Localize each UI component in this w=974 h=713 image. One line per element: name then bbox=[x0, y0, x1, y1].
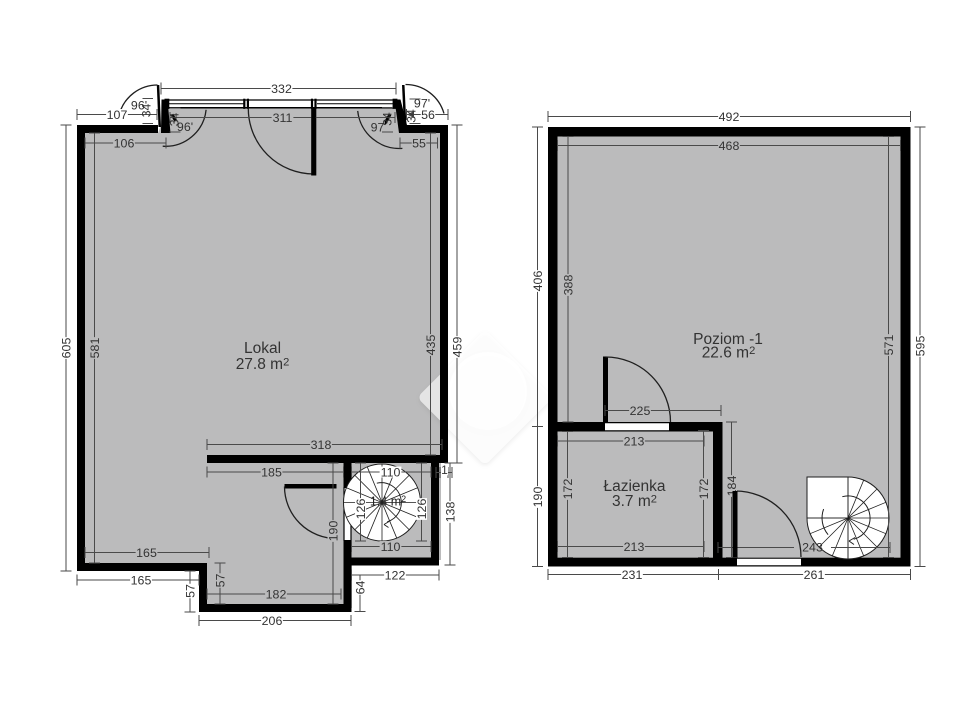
svg-text:243: 243 bbox=[802, 540, 823, 554]
svg-text:110: 110 bbox=[381, 540, 401, 554]
svg-text:126: 126 bbox=[415, 499, 429, 520]
svg-text:581: 581 bbox=[88, 338, 102, 359]
svg-text:Lokal: Lokal bbox=[244, 340, 281, 357]
svg-text:182: 182 bbox=[266, 587, 287, 601]
svg-text:1.4 m2: 1.4 m2 bbox=[370, 494, 406, 509]
svg-text:3.7 m2: 3.7 m2 bbox=[612, 493, 657, 510]
svg-text:172: 172 bbox=[561, 479, 575, 500]
svg-text:190: 190 bbox=[326, 521, 340, 542]
svg-text:110: 110 bbox=[381, 465, 401, 479]
svg-text:106: 106 bbox=[114, 136, 135, 150]
svg-text:122: 122 bbox=[385, 568, 406, 582]
svg-text:165: 165 bbox=[131, 573, 152, 587]
svg-text:34: 34 bbox=[405, 109, 419, 123]
svg-text:57: 57 bbox=[183, 584, 197, 598]
svg-text:318: 318 bbox=[311, 438, 332, 452]
svg-text:225: 225 bbox=[630, 404, 651, 418]
svg-text:468: 468 bbox=[719, 139, 740, 153]
svg-text:27.8 m2: 27.8 m2 bbox=[236, 356, 290, 373]
svg-text:22.6 m2: 22.6 m2 bbox=[702, 344, 756, 361]
svg-text:492: 492 bbox=[719, 110, 740, 124]
svg-text:185: 185 bbox=[261, 465, 282, 479]
svg-text:605: 605 bbox=[59, 338, 73, 359]
svg-text:107: 107 bbox=[107, 108, 128, 122]
svg-text:213: 213 bbox=[624, 434, 645, 448]
svg-text:332: 332 bbox=[271, 82, 292, 96]
svg-text:571: 571 bbox=[882, 335, 896, 356]
svg-text:231: 231 bbox=[622, 568, 643, 582]
svg-text:311: 311 bbox=[273, 111, 293, 125]
svg-text:34: 34 bbox=[381, 112, 395, 126]
svg-text:97': 97' bbox=[414, 96, 430, 110]
svg-text:388: 388 bbox=[561, 275, 575, 296]
svg-text:57: 57 bbox=[213, 574, 227, 588]
svg-text:34: 34 bbox=[168, 113, 182, 127]
svg-text:459: 459 bbox=[450, 337, 464, 358]
svg-text:190: 190 bbox=[531, 487, 545, 508]
svg-text:435: 435 bbox=[424, 335, 438, 356]
svg-text:595: 595 bbox=[913, 336, 927, 357]
svg-text:213: 213 bbox=[624, 540, 645, 554]
svg-text:1: 1 bbox=[441, 463, 448, 477]
svg-text:55: 55 bbox=[412, 136, 426, 150]
svg-text:165: 165 bbox=[136, 546, 157, 560]
svg-text:34: 34 bbox=[140, 104, 154, 118]
svg-text:406: 406 bbox=[531, 271, 545, 292]
svg-text:261: 261 bbox=[804, 568, 825, 582]
svg-text:172: 172 bbox=[697, 479, 711, 500]
svg-text:64: 64 bbox=[353, 581, 367, 595]
svg-text:126: 126 bbox=[354, 499, 368, 520]
svg-text:206: 206 bbox=[262, 614, 283, 628]
svg-text:138: 138 bbox=[443, 502, 457, 523]
